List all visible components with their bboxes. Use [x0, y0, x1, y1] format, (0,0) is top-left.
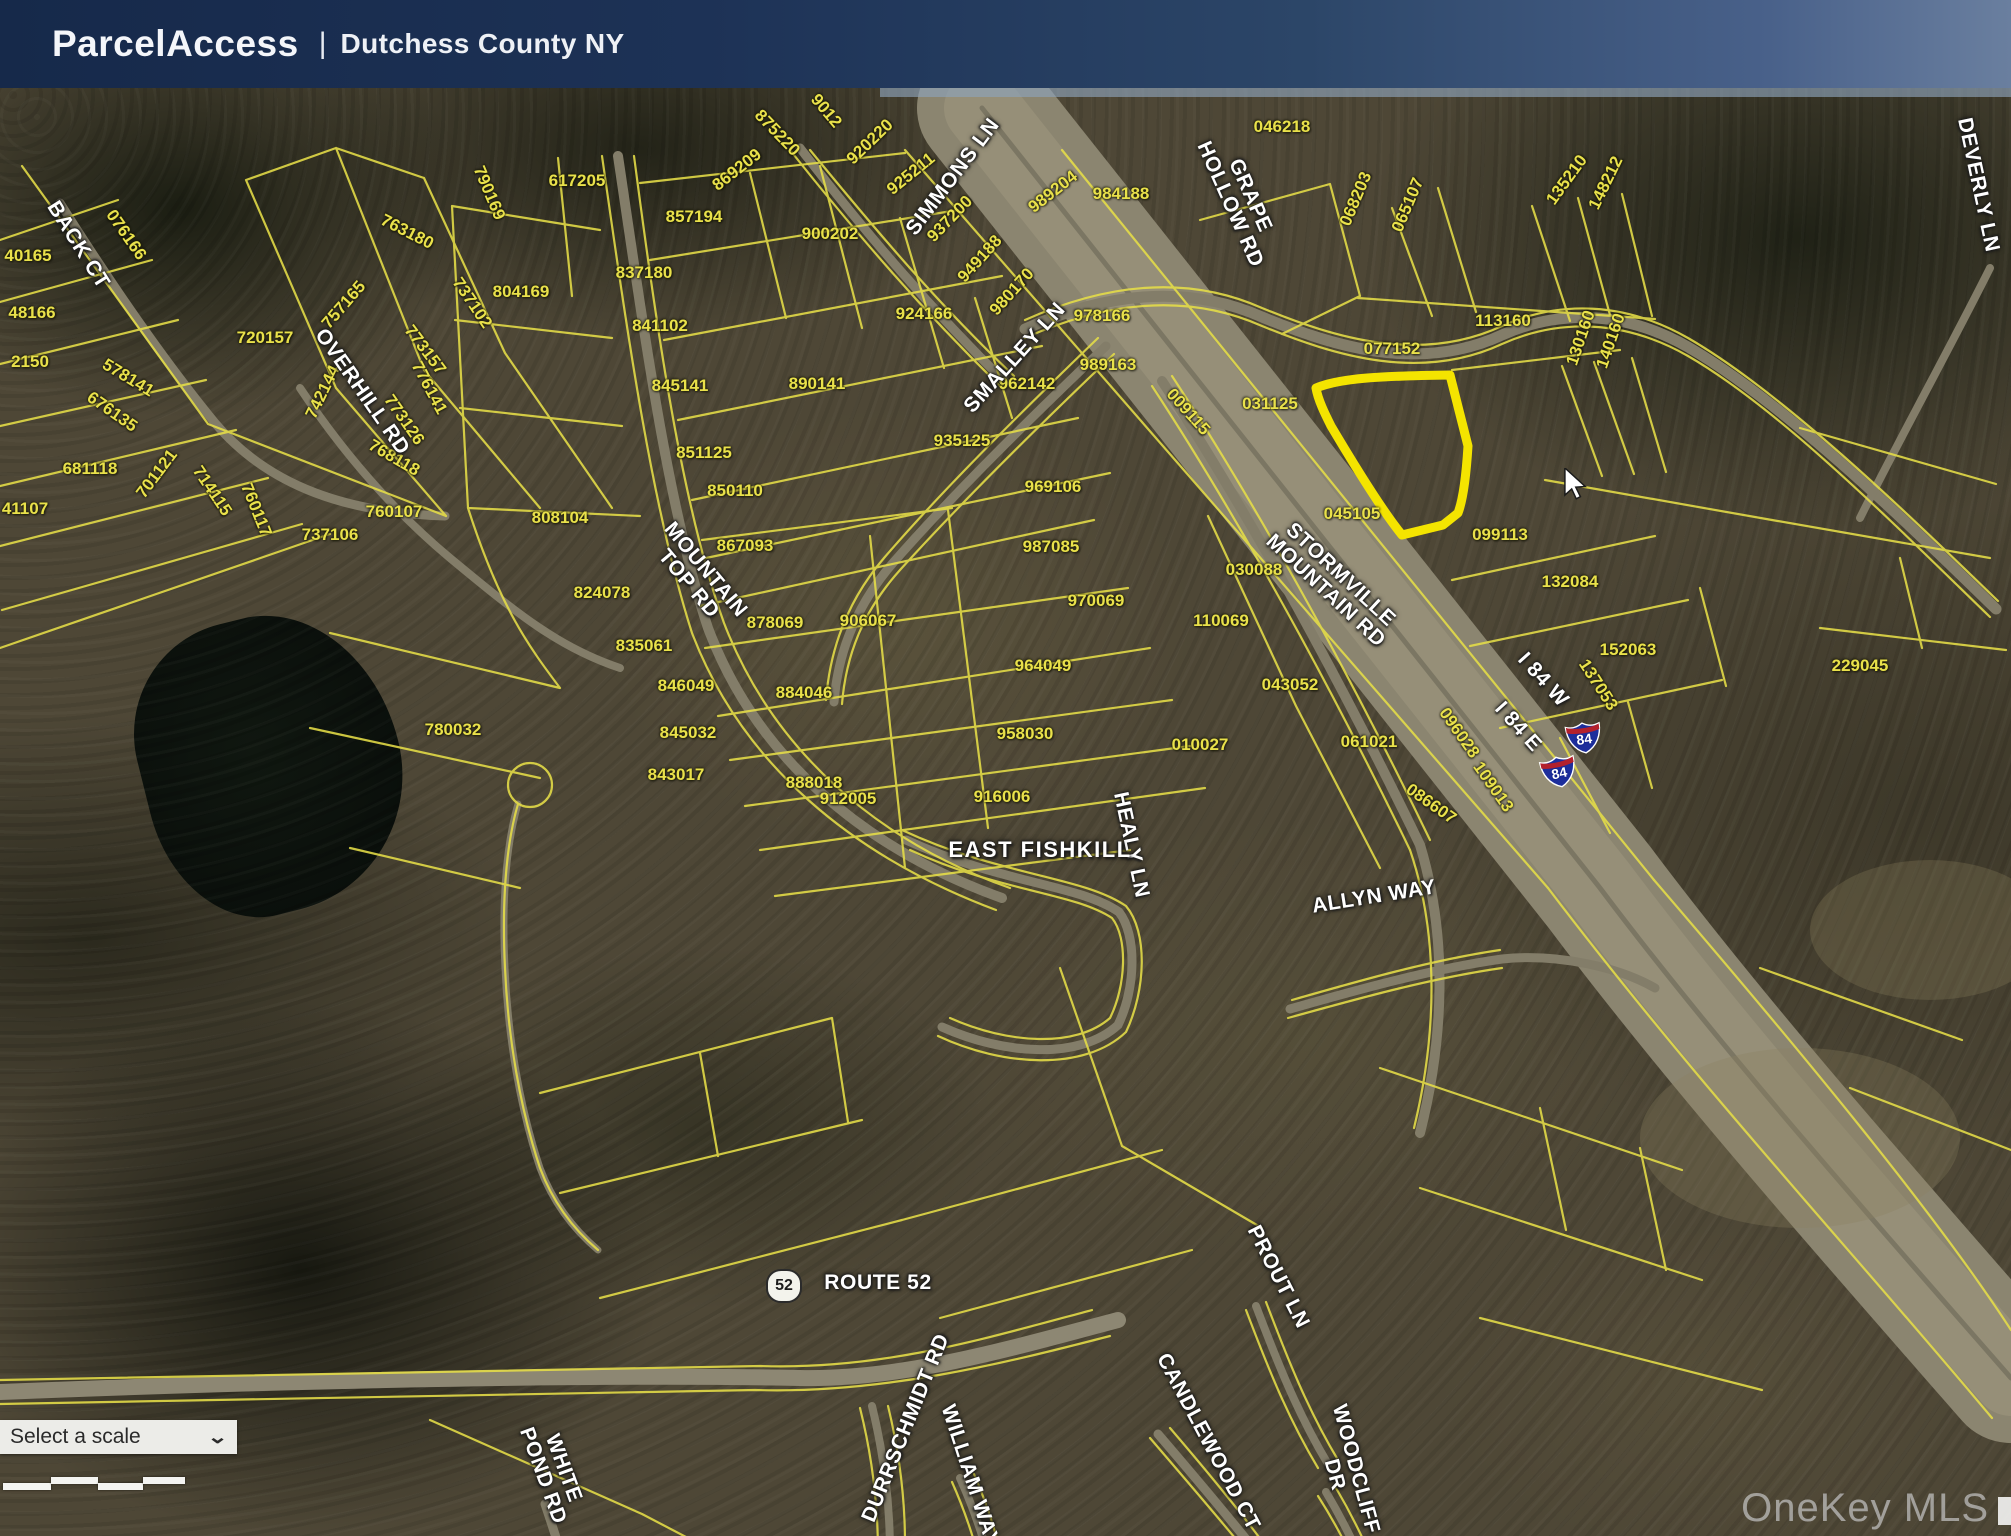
mouse-cursor-icon [1563, 468, 1589, 500]
county-subtitle: Dutchess County NY [341, 28, 625, 60]
route-52-shield-icon: 52 [766, 1269, 802, 1303]
scale-select-dropdown[interactable]: Select a scale ⌄ [0, 1420, 237, 1454]
place-label: EAST FISHKILL [948, 837, 1131, 863]
map-scale-bar [3, 1477, 185, 1491]
parcelaccess-app: ParcelAccess | Dutchess County NY [0, 0, 2011, 1536]
parcel-line-network [0, 88, 2011, 1536]
app-title: ParcelAccess [52, 23, 299, 65]
map-viewport[interactable]: 0761664016548166215068111870112141107578… [0, 88, 2011, 1536]
title-divider: | [319, 27, 327, 61]
route-52-shield-number: 52 [775, 1277, 793, 1295]
chevron-down-icon: ⌄ [207, 1427, 228, 1448]
app-header: ParcelAccess | Dutchess County NY [0, 0, 2011, 88]
interstate-84-shield-icon: 84 [1564, 720, 1604, 757]
onekey-mls-watermark: OneKey MLS [1741, 1486, 1989, 1531]
corner-artifact [1998, 1497, 2011, 1525]
scale-select-label: Select a scale [10, 1425, 210, 1449]
